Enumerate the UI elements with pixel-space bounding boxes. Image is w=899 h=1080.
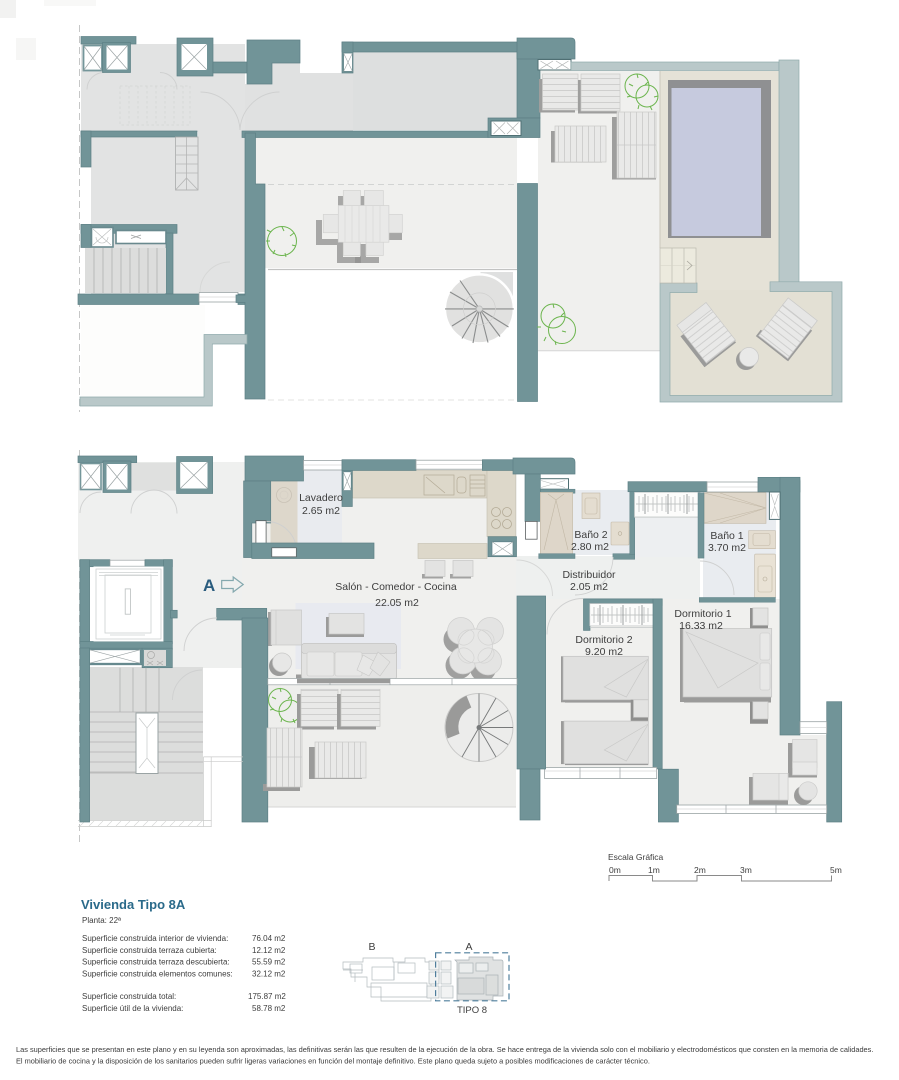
svg-text:2.65 m2: 2.65 m2: [302, 505, 340, 517]
svg-text:32.12 m2: 32.12 m2: [252, 970, 286, 979]
svg-text:Salón - Comedor - Cocina: Salón - Comedor - Cocina: [335, 581, 457, 593]
svg-text:Superficie construida terraza: Superficie construida terraza descubiert…: [82, 958, 230, 967]
svg-text:TIPO 8: TIPO 8: [457, 1005, 487, 1016]
svg-text:58.78 m2: 58.78 m2: [252, 1004, 286, 1013]
svg-text:Escala Gráfica: Escala Gráfica: [608, 852, 664, 862]
svg-text:2.80 m2: 2.80 m2: [571, 541, 609, 553]
svg-text:Dormitorio 2: Dormitorio 2: [575, 634, 632, 646]
svg-text:Baño 1: Baño 1: [710, 530, 743, 542]
svg-text:175.87 m2: 175.87 m2: [248, 992, 286, 1001]
svg-text:2.05 m2: 2.05 m2: [570, 581, 608, 593]
svg-text:Superficie útil de la vivienda: Superficie útil de la vivienda:: [82, 1004, 183, 1013]
svg-text:1m: 1m: [648, 865, 660, 875]
svg-text:3.70 m2: 3.70 m2: [708, 542, 746, 554]
svg-text:Superficie construida terraza: Superficie construida terraza cubierta:: [82, 946, 217, 955]
svg-text:Superficie construida interior: Superficie construida interior de vivien…: [82, 934, 228, 943]
svg-text:12.12 m2: 12.12 m2: [252, 946, 286, 955]
svg-text:Lavadero: Lavadero: [299, 492, 343, 504]
svg-text:5m: 5m: [830, 865, 842, 875]
svg-text:Distribuidor: Distribuidor: [562, 569, 616, 581]
svg-text:El mobiliario de cocina y la d: El mobiliario de cocina y la disposición…: [16, 1057, 650, 1066]
svg-text:Planta: 22ª: Planta: 22ª: [82, 916, 121, 925]
svg-text:16.33 m2: 16.33 m2: [679, 620, 723, 632]
svg-text:3m: 3m: [740, 865, 752, 875]
svg-text:Baño 2: Baño 2: [574, 529, 607, 541]
svg-text:Dormitorio 1: Dormitorio 1: [674, 608, 731, 620]
svg-text:9.20 m2: 9.20 m2: [585, 646, 623, 658]
svg-text:Las superficies que se present: Las superficies que se presentan en este…: [16, 1045, 873, 1054]
svg-text:Superficie construida elemento: Superficie construida elementos comunes:: [82, 970, 233, 979]
svg-text:Vivienda Tipo 8A: Vivienda Tipo 8A: [81, 897, 186, 912]
svg-text:Superficie construida total:: Superficie construida total:: [82, 992, 176, 1001]
svg-text:76.04 m2: 76.04 m2: [252, 934, 286, 943]
svg-text:A: A: [203, 576, 215, 595]
svg-text:B: B: [368, 941, 375, 953]
svg-text:A: A: [465, 941, 472, 953]
svg-text:55.59 m2: 55.59 m2: [252, 958, 286, 967]
svg-text:0m: 0m: [609, 865, 621, 875]
svg-text:2m: 2m: [694, 865, 706, 875]
svg-text:22.05 m2: 22.05 m2: [375, 597, 419, 609]
